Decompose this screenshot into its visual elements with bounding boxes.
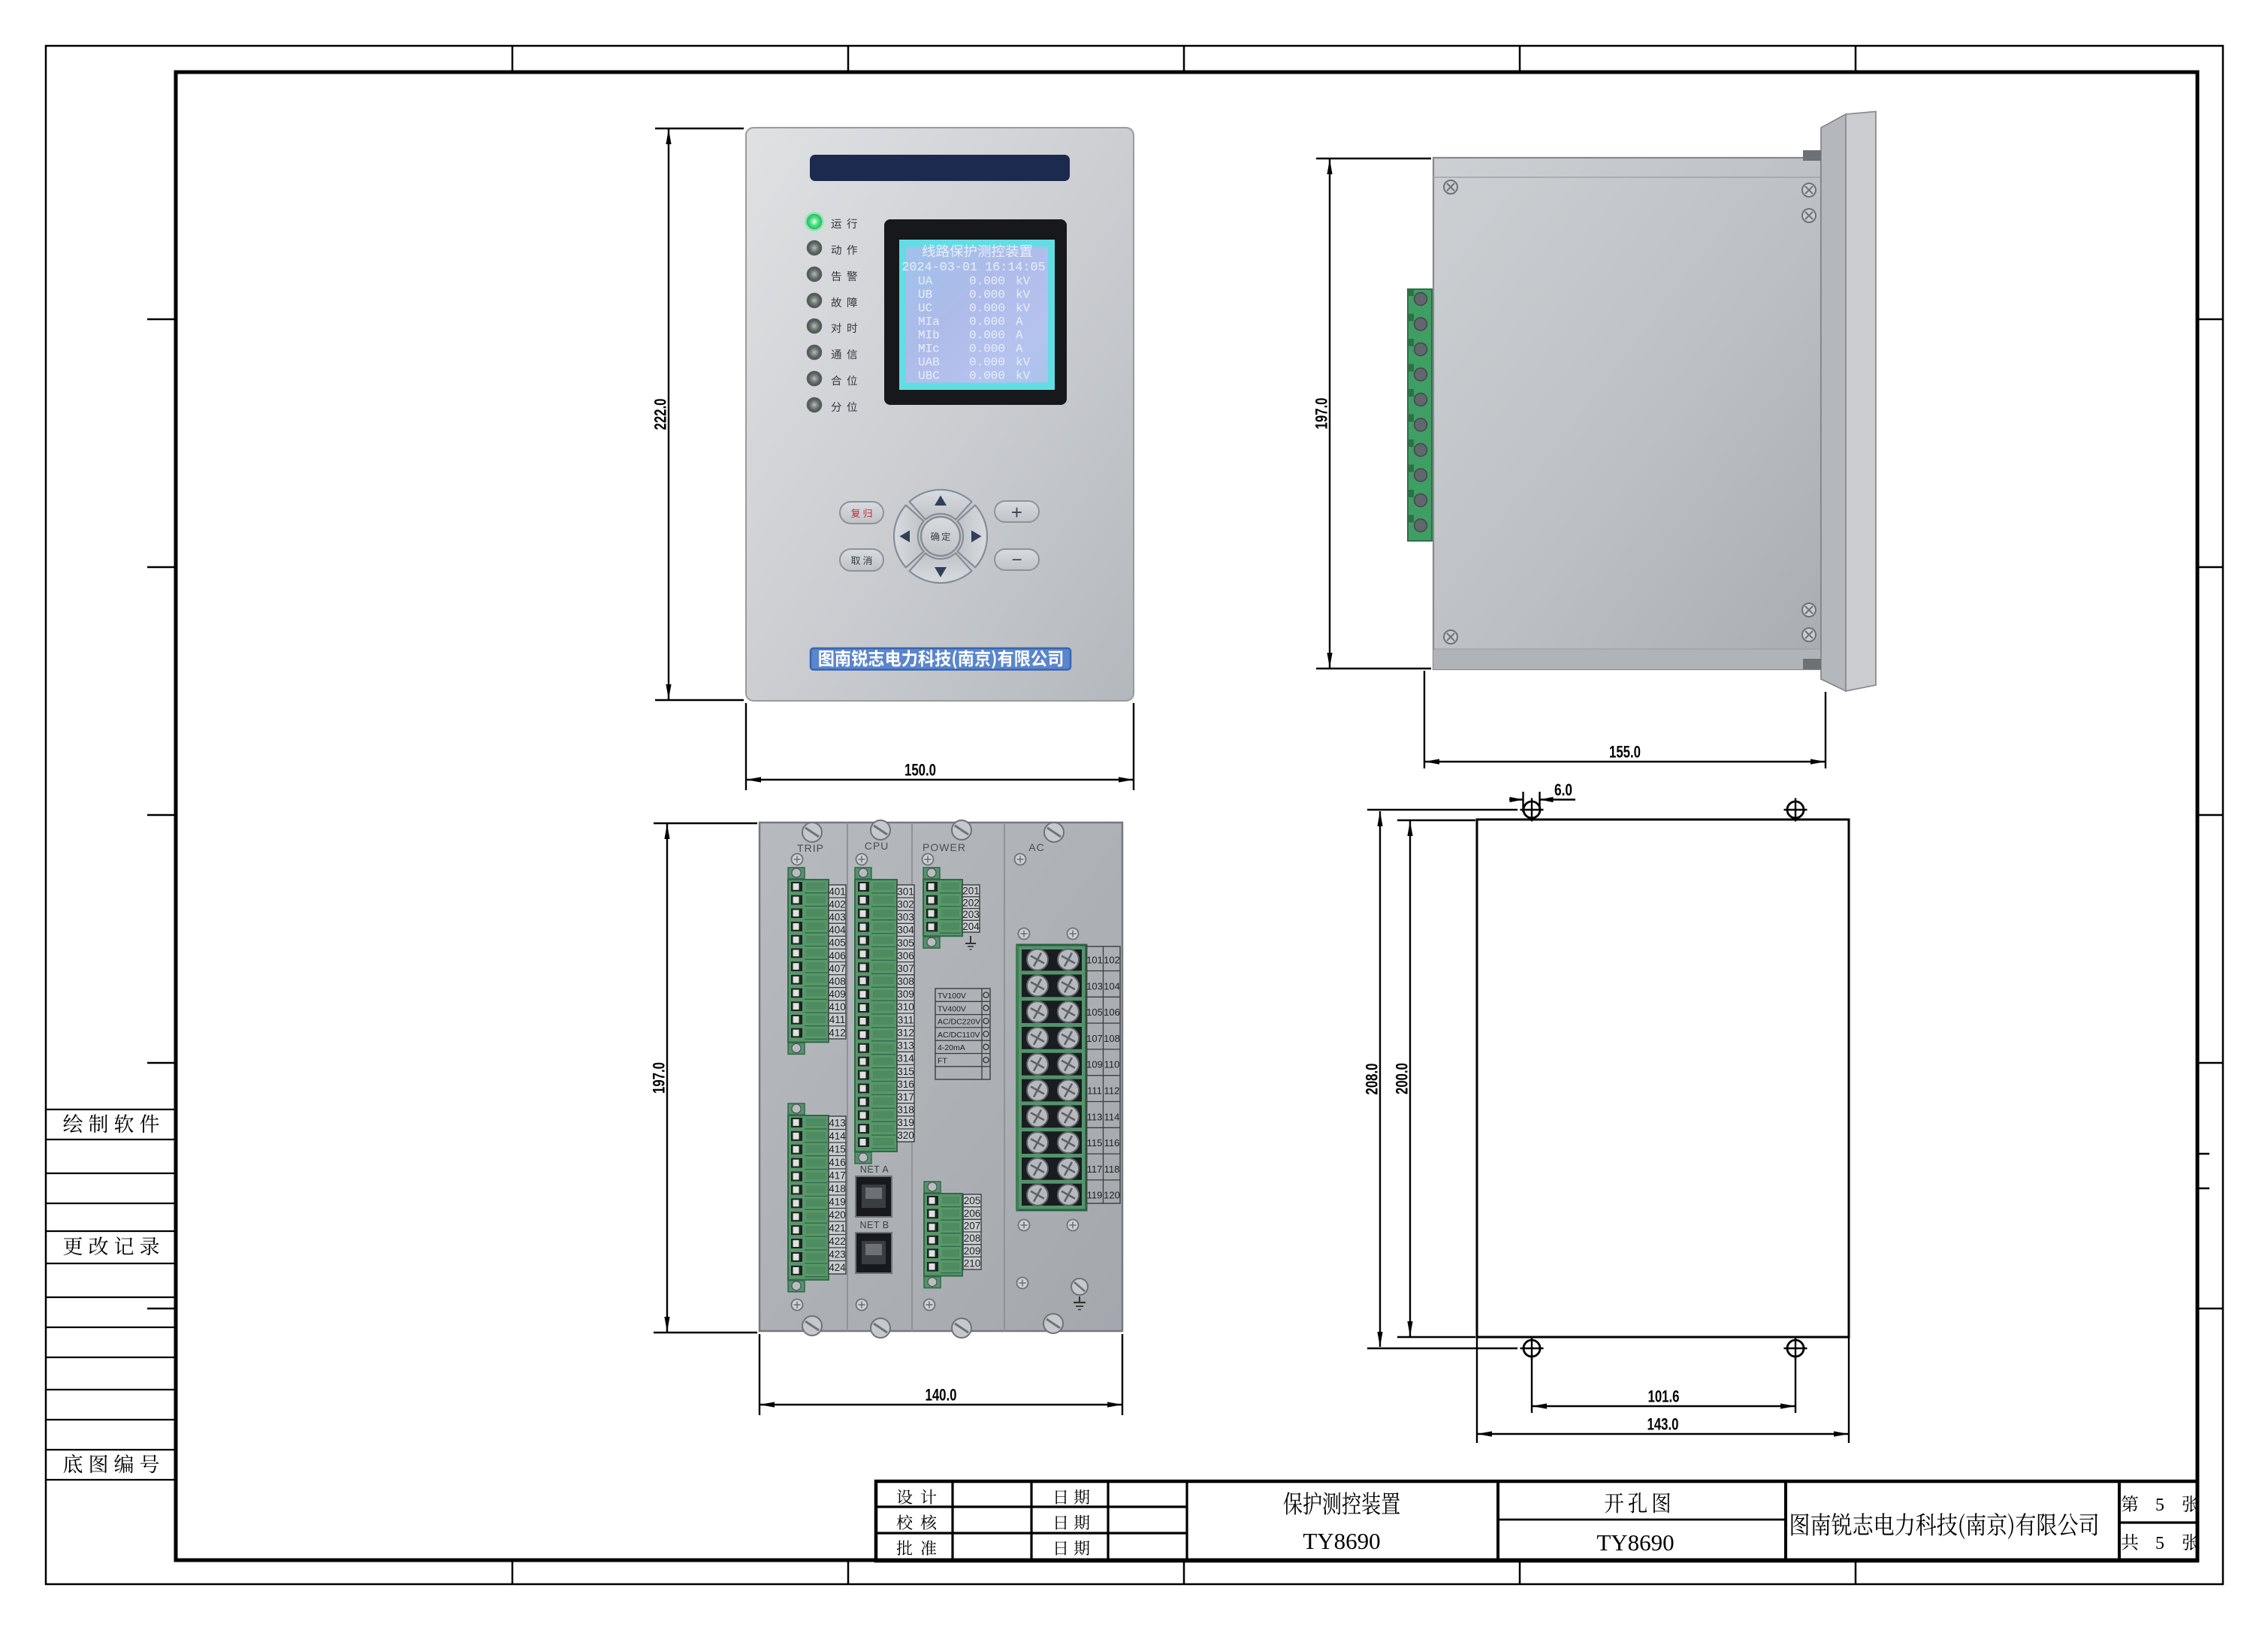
svg-text:207: 207 [964, 1221, 981, 1232]
svg-text:POWER: POWER [923, 841, 966, 853]
svg-text:423: 423 [829, 1249, 846, 1260]
svg-text:316: 316 [897, 1079, 914, 1090]
svg-text:0.000: 0.000 [969, 370, 1005, 383]
svg-text:155.0: 155.0 [1609, 743, 1641, 762]
svg-text:kV: kV [1016, 288, 1031, 302]
svg-text:+: + [1011, 501, 1022, 524]
svg-text:203: 203 [962, 909, 980, 920]
svg-text:303: 303 [897, 912, 914, 923]
svg-text:MIa: MIa [918, 315, 940, 329]
svg-text:102: 102 [1104, 955, 1120, 966]
svg-text:420: 420 [829, 1209, 846, 1221]
svg-text:406: 406 [829, 950, 846, 961]
svg-text:209: 209 [964, 1245, 981, 1257]
svg-text:110: 110 [1104, 1059, 1120, 1070]
svg-text:115: 115 [1087, 1137, 1103, 1149]
svg-text:A: A [1016, 343, 1023, 356]
svg-text:TY8690: TY8690 [1596, 1529, 1674, 1556]
svg-text:307: 307 [897, 963, 914, 974]
svg-text:kV: kV [1016, 275, 1031, 288]
svg-text:315: 315 [897, 1066, 914, 1077]
svg-text:405: 405 [829, 937, 846, 949]
svg-text:119: 119 [1087, 1190, 1103, 1201]
svg-text:204: 204 [962, 921, 980, 932]
svg-text:143.0: 143.0 [1647, 1415, 1679, 1434]
svg-text:UB: UB [918, 288, 932, 302]
svg-text:−: − [1011, 550, 1022, 570]
svg-text:0.000: 0.000 [969, 329, 1005, 343]
svg-text:TV100V: TV100V [938, 992, 966, 1001]
svg-text:114: 114 [1104, 1111, 1120, 1122]
svg-text:208: 208 [964, 1233, 981, 1244]
svg-text:5: 5 [2155, 1534, 2164, 1553]
svg-text:0.000: 0.000 [969, 356, 1005, 370]
svg-text:314: 314 [897, 1053, 914, 1064]
svg-text:313: 313 [897, 1040, 914, 1052]
svg-text:312: 312 [897, 1027, 914, 1038]
svg-text:0.000: 0.000 [969, 275, 1005, 288]
svg-text:412: 412 [829, 1027, 846, 1038]
svg-text:UC: UC [918, 302, 932, 315]
svg-text:118: 118 [1104, 1164, 1120, 1175]
svg-text:111: 111 [1087, 1085, 1102, 1097]
svg-text:0.000: 0.000 [969, 343, 1005, 356]
svg-text:419: 419 [829, 1197, 846, 1208]
svg-text:317: 317 [897, 1091, 914, 1103]
svg-text:415: 415 [829, 1144, 846, 1155]
svg-text:197.0: 197.0 [1312, 398, 1331, 430]
svg-text:6.0: 6.0 [1554, 780, 1572, 799]
svg-text:202: 202 [962, 897, 980, 908]
svg-text:MIb: MIb [918, 329, 940, 343]
svg-text:AC/DC110V: AC/DC110V [938, 1031, 980, 1040]
svg-text:FT: FT [938, 1057, 947, 1066]
svg-text:TRIP: TRIP [797, 842, 824, 854]
svg-text:2024-03-01 16:14:05: 2024-03-01 16:14:05 [901, 261, 1045, 275]
svg-text:101.6: 101.6 [1648, 1387, 1680, 1406]
svg-text:101: 101 [1086, 955, 1103, 966]
svg-text:200.0: 200.0 [1393, 1063, 1412, 1094]
svg-text:222.0: 222.0 [651, 399, 670, 430]
svg-text:421: 421 [829, 1223, 846, 1234]
svg-text:120: 120 [1104, 1190, 1120, 1201]
svg-text:UBC: UBC [918, 370, 940, 383]
svg-text:417: 417 [829, 1170, 846, 1182]
svg-text:311: 311 [898, 1014, 914, 1025]
svg-text:0.000: 0.000 [969, 315, 1005, 329]
svg-text:308: 308 [897, 976, 914, 987]
svg-text:TY8690: TY8690 [1303, 1528, 1380, 1554]
svg-text:112: 112 [1104, 1085, 1120, 1097]
svg-text:4-20mA: 4-20mA [938, 1043, 965, 1052]
svg-text:208.0: 208.0 [1363, 1064, 1382, 1095]
svg-text:201: 201 [962, 886, 980, 897]
svg-text:304: 304 [897, 925, 914, 936]
svg-text:409: 409 [829, 989, 846, 1000]
svg-text:CPU: CPU [865, 840, 889, 852]
svg-text:kV: kV [1016, 302, 1031, 315]
svg-text:kV: kV [1016, 356, 1031, 370]
svg-text:422: 422 [829, 1236, 846, 1247]
svg-text:411: 411 [829, 1014, 846, 1025]
svg-text:AC: AC [1028, 841, 1044, 853]
svg-text:UA: UA [918, 275, 933, 288]
svg-text:309: 309 [897, 989, 914, 1000]
svg-text:113: 113 [1087, 1111, 1103, 1122]
svg-text:108: 108 [1104, 1033, 1120, 1044]
svg-text:404: 404 [829, 925, 846, 936]
svg-text:319: 319 [897, 1117, 914, 1128]
svg-text:402: 402 [829, 898, 846, 910]
svg-text:TV400V: TV400V [938, 1004, 966, 1013]
svg-text:AC/DC220V: AC/DC220V [938, 1018, 980, 1027]
svg-text:197.0: 197.0 [650, 1062, 669, 1094]
svg-text:140.0: 140.0 [926, 1386, 957, 1405]
svg-text:A: A [1016, 329, 1023, 343]
svg-text:306: 306 [897, 950, 914, 961]
svg-text:UAB: UAB [918, 356, 940, 370]
svg-text:301: 301 [897, 886, 914, 897]
svg-text:320: 320 [897, 1130, 914, 1141]
svg-text:413: 413 [829, 1118, 846, 1129]
svg-text:NET A: NET A [860, 1164, 889, 1175]
svg-text:106: 106 [1104, 1007, 1120, 1018]
svg-text:MIc: MIc [918, 343, 940, 356]
svg-text:414: 414 [829, 1130, 846, 1142]
svg-text:401: 401 [829, 886, 846, 897]
svg-text:408: 408 [829, 976, 846, 987]
svg-text:0.000: 0.000 [969, 302, 1005, 315]
svg-text:310: 310 [897, 1001, 914, 1013]
svg-text:206: 206 [964, 1208, 981, 1219]
svg-text:150.0: 150.0 [904, 761, 936, 780]
svg-text:210: 210 [964, 1258, 981, 1269]
svg-text:109: 109 [1086, 1059, 1103, 1070]
svg-text:116: 116 [1104, 1137, 1120, 1149]
svg-text:318: 318 [897, 1104, 914, 1115]
svg-text:kV: kV [1016, 370, 1031, 383]
svg-text:NET B: NET B [859, 1220, 889, 1230]
svg-text:103: 103 [1086, 980, 1103, 992]
svg-text:302: 302 [897, 898, 914, 910]
svg-text:418: 418 [829, 1183, 846, 1194]
svg-text:117: 117 [1087, 1164, 1103, 1175]
svg-text:104: 104 [1104, 980, 1120, 992]
svg-text:0.000: 0.000 [969, 288, 1005, 302]
svg-text:424: 424 [829, 1262, 846, 1273]
svg-text:105: 105 [1086, 1007, 1103, 1018]
svg-text:5: 5 [2155, 1496, 2164, 1515]
svg-text:A: A [1016, 315, 1023, 329]
svg-text:205: 205 [964, 1195, 981, 1206]
svg-text:305: 305 [897, 937, 914, 949]
svg-text:407: 407 [829, 963, 846, 974]
svg-text:416: 416 [829, 1157, 846, 1168]
svg-text:107: 107 [1086, 1033, 1103, 1044]
svg-text:403: 403 [829, 912, 846, 923]
svg-text:410: 410 [829, 1001, 846, 1013]
